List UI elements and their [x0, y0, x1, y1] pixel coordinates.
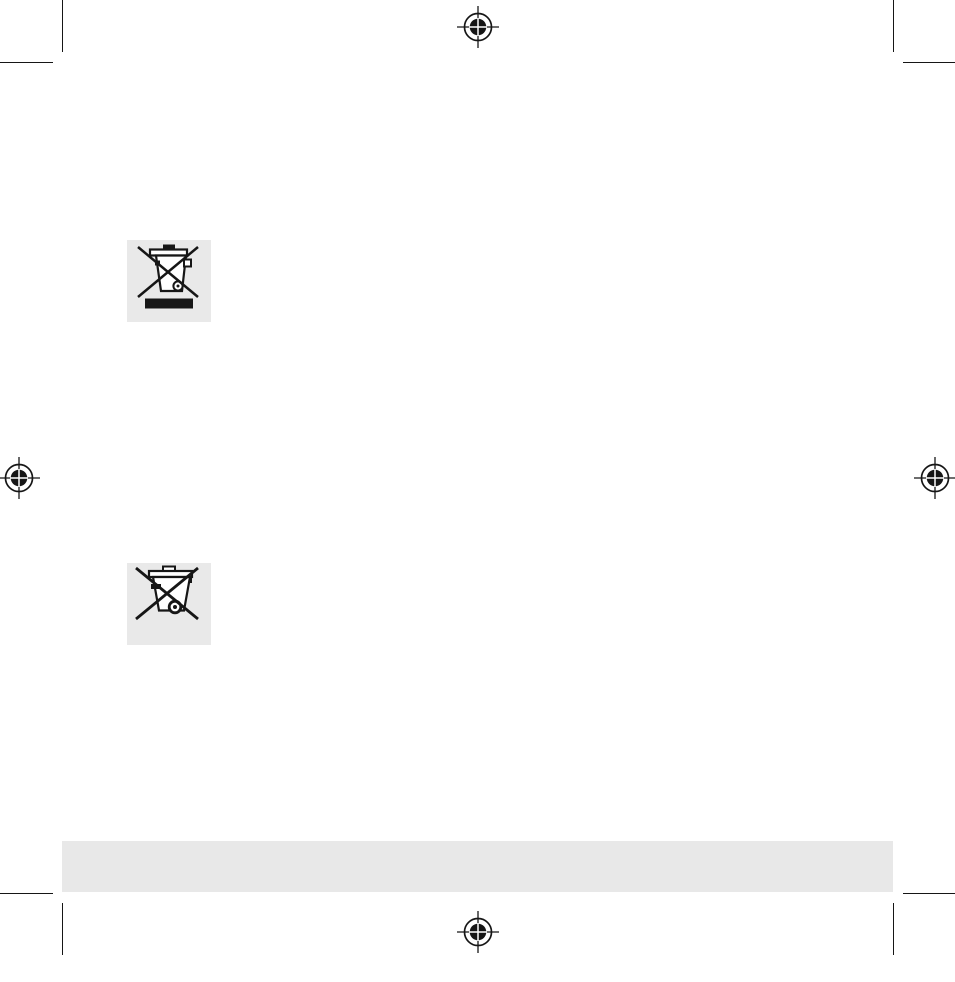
crop-mark-top-right-horizontal	[903, 62, 955, 64]
registration-mark-left-middle-icon	[0, 456, 41, 500]
crop-mark-top-left-vertical	[62, 0, 64, 52]
crop-mark-bottom-right-horizontal	[903, 893, 955, 895]
crop-mark-bottom-left-vertical	[62, 903, 64, 955]
crop-mark-bottom-left-horizontal	[0, 893, 53, 895]
registration-mark-top-center-icon	[456, 5, 500, 49]
crop-mark-bottom-right-vertical	[893, 903, 895, 955]
crop-mark-top-left-horizontal	[0, 62, 53, 64]
footer-bar	[62, 841, 893, 892]
weee-bin-icon	[127, 563, 211, 645]
weee-symbol-box-with-bar	[127, 240, 211, 322]
crop-mark-top-right-vertical	[893, 0, 895, 52]
registration-mark-right-middle-icon	[913, 456, 955, 500]
weee-bin-with-bar-icon	[127, 240, 211, 322]
weee-symbol-box	[127, 563, 211, 645]
registration-mark-bottom-center-icon	[456, 910, 500, 954]
page-canvas	[0, 0, 955, 982]
